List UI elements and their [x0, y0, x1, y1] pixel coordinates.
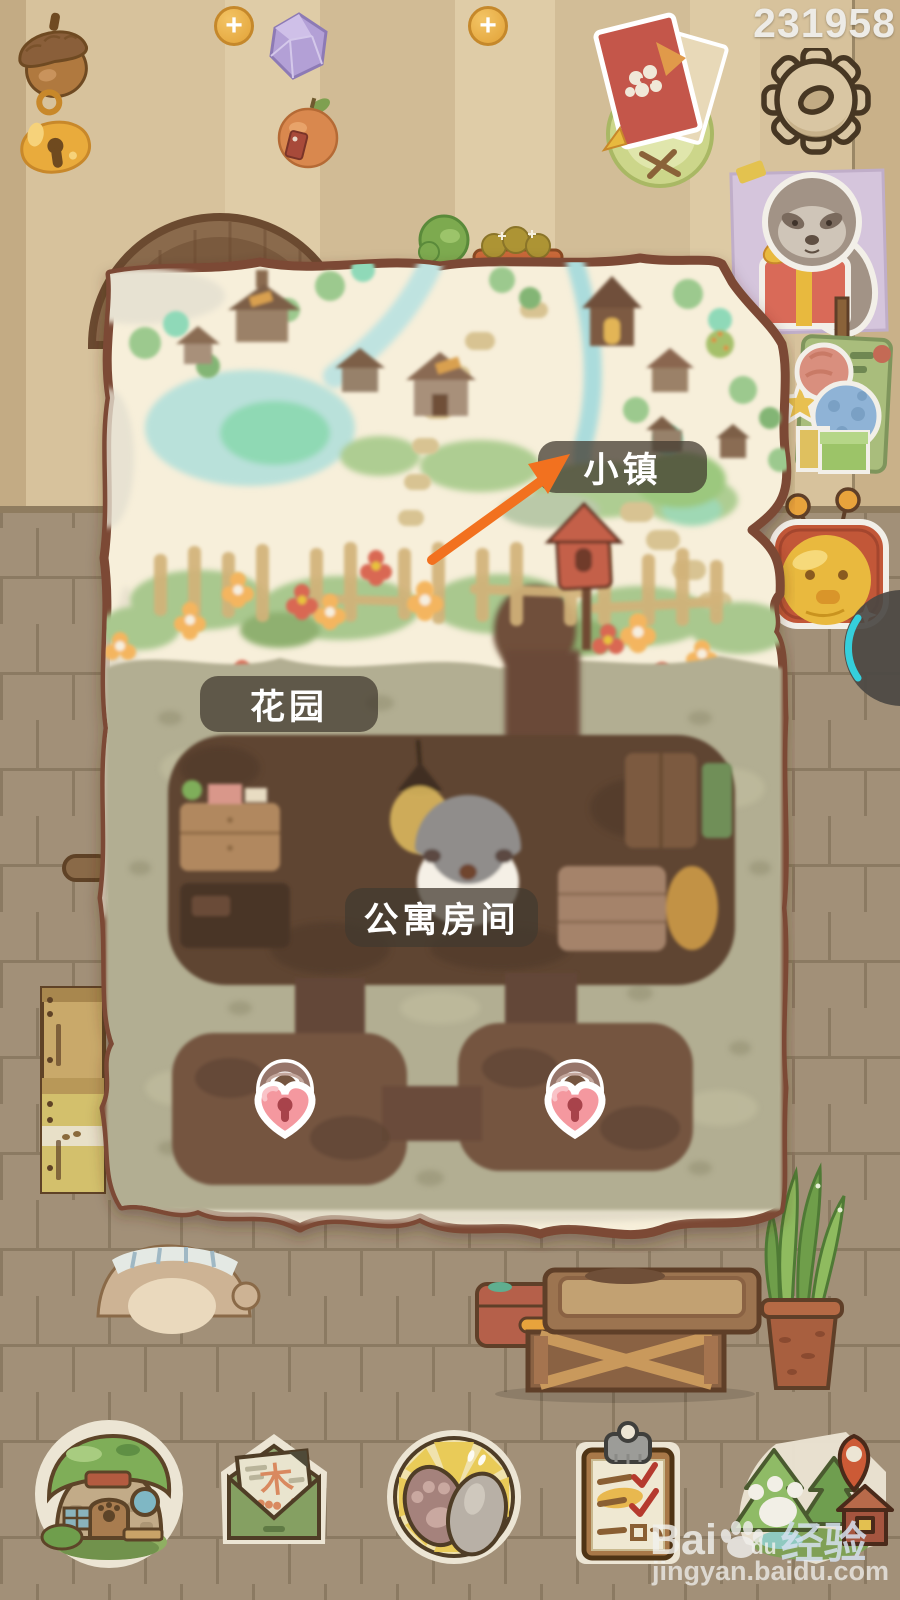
player-id: 231958 — [732, 0, 896, 47]
map-canvas[interactable] — [80, 248, 795, 1253]
plus-icon: + — [479, 9, 497, 43]
gem-plus-button[interactable]: + — [468, 6, 508, 46]
garden-label-text: 花园 — [250, 679, 328, 730]
game-screen: 小镇 花园 公寓房间 3278 + 49 + 235 3 231958 — [0, 0, 900, 1600]
home-icon — [28, 1410, 190, 1572]
home-button[interactable] — [28, 1410, 190, 1572]
mail-button[interactable]: 木 — [203, 1420, 345, 1562]
invite-icon[interactable] — [590, 6, 730, 192]
gear-icon[interactable] — [748, 48, 888, 156]
garden-label[interactable]: 花园 — [200, 676, 378, 732]
annotation-arrow — [400, 440, 620, 590]
apartment-label-text: 公寓房间 — [363, 892, 519, 943]
mail-letter-char: 木 — [257, 1460, 296, 1501]
plus-icon: + — [225, 9, 243, 43]
acorn-plus-button[interactable]: + — [214, 6, 254, 46]
bell-icon — [2, 86, 108, 182]
map-region-apartment[interactable] — [168, 735, 735, 985]
orange-icon — [268, 84, 348, 178]
apartment-label[interactable]: 公寓房间 — [345, 888, 538, 947]
mail-icon: 木 — [203, 1420, 345, 1562]
gem-icon — [262, 10, 336, 84]
paws-icon — [383, 1426, 525, 1568]
watermark-url: jingyan.baidu.com — [652, 1556, 900, 1587]
social-button[interactable] — [383, 1426, 525, 1568]
